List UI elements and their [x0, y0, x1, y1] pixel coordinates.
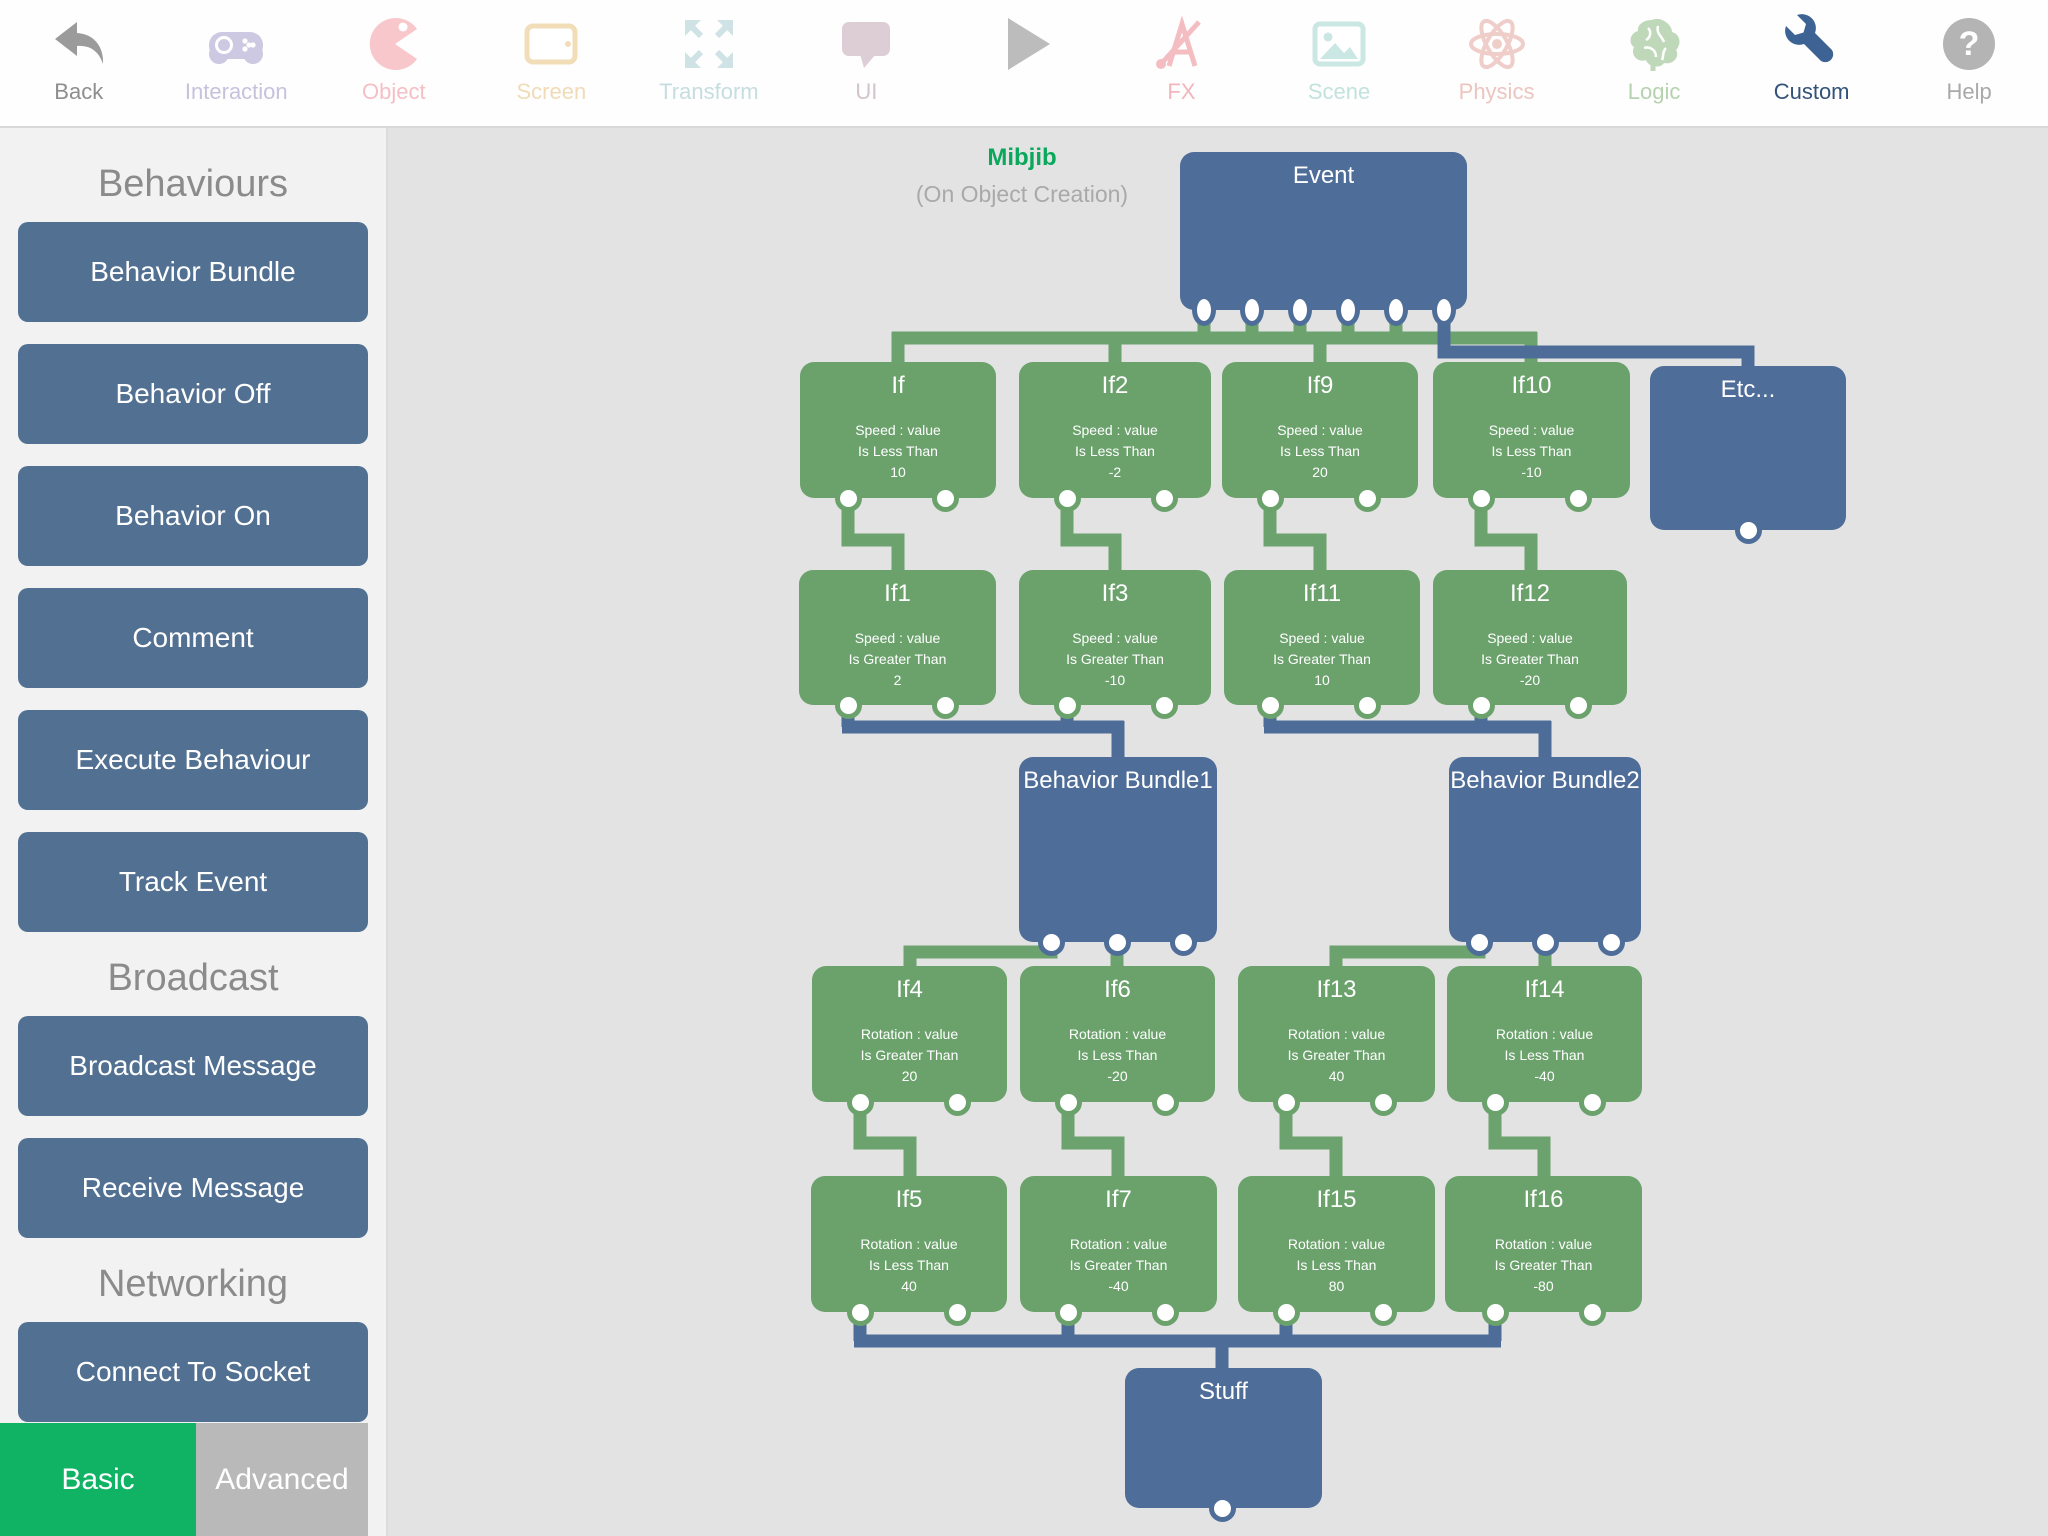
node-condition-text: Speed : valueIs Less Than20 — [1222, 420, 1418, 483]
toolbar-label-transform: Transform — [659, 80, 758, 104]
node-condition-text: Speed : valueIs Greater Than-10 — [1019, 628, 1211, 691]
output-port[interactable] — [1565, 692, 1592, 719]
node-if3[interactable]: If3Speed : valueIs Greater Than-10 — [1019, 570, 1211, 705]
toolbar-label-screen: Screen — [517, 80, 587, 104]
output-port[interactable] — [1054, 485, 1081, 512]
toolbar-item-custom[interactable]: Custom — [1733, 0, 1891, 126]
output-port[interactable] — [1192, 294, 1216, 326]
node-condition-text: Speed : valueIs Greater Than2 — [799, 628, 996, 691]
node-title: If11 — [1224, 580, 1420, 608]
node-if14[interactable]: If14Rotation : valueIs Less Than-40 — [1447, 966, 1642, 1102]
node-if12[interactable]: If12Speed : valueIs Greater Than-20 — [1433, 570, 1627, 705]
output-port[interactable] — [1565, 485, 1592, 512]
node-stuff[interactable]: Stuff — [1125, 1368, 1322, 1508]
output-port[interactable] — [1240, 294, 1264, 326]
back-icon — [47, 12, 111, 76]
tablet-icon — [519, 12, 583, 76]
sidebar-header-behaviours: Behaviours — [0, 162, 386, 206]
object-name: Mibjib — [892, 144, 1152, 172]
node-if6[interactable]: If6Rotation : valueIs Less Than-20 — [1020, 966, 1215, 1102]
node-condition-text: Rotation : valueIs Greater Than40 — [1238, 1024, 1435, 1087]
node-title: If4 — [812, 976, 1007, 1004]
node-title: If13 — [1238, 976, 1435, 1004]
node-title: If12 — [1433, 580, 1627, 608]
output-port[interactable] — [932, 485, 959, 512]
node-title: If5 — [811, 1186, 1007, 1214]
toolbar-item-back[interactable]: Back — [0, 0, 158, 126]
toolbar-item-scene[interactable]: Scene — [1260, 0, 1418, 126]
node-condition-text: Speed : valueIs Greater Than-20 — [1433, 628, 1627, 691]
sidebar-button-receive-message[interactable]: Receive Message — [18, 1138, 368, 1238]
node-behavior-bundle1[interactable]: Behavior Bundle1 — [1019, 757, 1217, 942]
node-event[interactable]: Event — [1180, 152, 1467, 310]
output-port[interactable] — [847, 1089, 874, 1116]
sidebar-button-comment[interactable]: Comment — [18, 588, 368, 688]
image-icon — [1307, 12, 1371, 76]
node-title: If16 — [1445, 1186, 1642, 1214]
output-port[interactable] — [1466, 929, 1493, 956]
node-title: If15 — [1238, 1186, 1435, 1214]
node-title: Behavior Bundle2 — [1449, 767, 1641, 795]
node-if5[interactable]: If5Rotation : valueIs Less Than40 — [811, 1176, 1007, 1312]
node-condition-text: Speed : valueIs Less Than-10 — [1433, 420, 1630, 483]
sidebar-header-networking: Networking — [0, 1262, 386, 1306]
object-annotation: Mibjib (On Object Creation) — [892, 144, 1152, 208]
toolbar-label-help: Help — [1947, 80, 1992, 104]
toolbar-item-help[interactable]: ?Help — [1890, 0, 2048, 126]
node-title: If — [800, 372, 996, 400]
node-if1[interactable]: If1Speed : valueIs Greater Than2 — [799, 570, 996, 705]
node-if16[interactable]: If16Rotation : valueIs Greater Than-80 — [1445, 1176, 1642, 1312]
node-condition-text: Rotation : valueIs Less Than-20 — [1020, 1024, 1215, 1087]
output-port[interactable] — [944, 1299, 971, 1326]
node-if[interactable]: IfSpeed : valueIs Less Than10 — [800, 362, 996, 498]
output-port[interactable] — [1273, 1299, 1300, 1326]
output-port[interactable] — [1152, 1089, 1179, 1116]
output-port[interactable] — [1354, 485, 1381, 512]
node-title: If6 — [1020, 976, 1215, 1004]
toolbar-label-scene: Scene — [1308, 80, 1370, 104]
output-port[interactable] — [1432, 294, 1456, 326]
brain-icon — [1622, 12, 1686, 76]
output-port[interactable] — [1054, 692, 1081, 719]
node-if13[interactable]: If13Rotation : valueIs Greater Than40 — [1238, 966, 1435, 1102]
output-port[interactable] — [1152, 1299, 1179, 1326]
output-port[interactable] — [1288, 294, 1312, 326]
node-etc[interactable]: Etc... — [1650, 366, 1846, 530]
output-port[interactable] — [1354, 692, 1381, 719]
graph-canvas[interactable] — [388, 128, 2048, 1536]
output-port[interactable] — [1336, 294, 1360, 326]
output-port[interactable] — [1384, 294, 1408, 326]
node-if9[interactable]: If9Speed : valueIs Less Than20 — [1222, 362, 1418, 498]
toolbar-label-ui: UI — [855, 80, 877, 104]
play-icon — [992, 12, 1056, 76]
output-port[interactable] — [1151, 485, 1178, 512]
question-icon: ? — [1937, 12, 2001, 76]
sidebar-button-connect-to-socket[interactable]: Connect To Socket — [18, 1322, 368, 1422]
output-port[interactable] — [1598, 929, 1625, 956]
wrench-icon — [1780, 12, 1844, 76]
atom-icon — [1465, 12, 1529, 76]
output-port[interactable] — [1170, 929, 1197, 956]
output-port[interactable] — [944, 1089, 971, 1116]
output-port[interactable] — [932, 692, 959, 719]
output-port[interactable] — [1209, 1495, 1236, 1522]
output-port[interactable] — [1273, 1089, 1300, 1116]
sidebar-button-track-event[interactable]: Track Event — [18, 832, 368, 932]
output-port[interactable] — [1579, 1299, 1606, 1326]
output-port[interactable] — [835, 485, 862, 512]
node-condition-text: Rotation : valueIs Less Than80 — [1238, 1234, 1435, 1297]
sidebar-header-broadcast: Broadcast — [0, 956, 386, 1000]
node-title: Etc... — [1650, 376, 1846, 404]
output-port[interactable] — [1735, 517, 1762, 544]
toolbar-label-fx: FX — [1167, 80, 1195, 104]
output-port[interactable] — [1055, 1299, 1082, 1326]
node-title: Event — [1180, 162, 1467, 190]
output-port[interactable] — [1055, 1089, 1082, 1116]
behavior-sidebar: BehavioursBehavior BundleBehavior OffBeh… — [0, 128, 388, 1536]
node-if4[interactable]: If4Rotation : valueIs Greater Than20 — [812, 966, 1007, 1102]
toolbar-item-physics[interactable]: Physics — [1418, 0, 1576, 126]
node-if2[interactable]: If2Speed : valueIs Less Than-2 — [1019, 362, 1211, 498]
output-port[interactable] — [1579, 1089, 1606, 1116]
node-title: Stuff — [1125, 1378, 1322, 1406]
node-title: If7 — [1020, 1186, 1217, 1214]
sidebar-button-behavior-off[interactable]: Behavior Off — [18, 344, 368, 444]
node-condition-text: Speed : valueIs Less Than10 — [800, 420, 996, 483]
node-condition-text: Rotation : valueIs Less Than40 — [811, 1234, 1007, 1297]
toolbar: BackInteractionObjectScreenTransformUIFX… — [0, 0, 2048, 128]
speech-bubble-icon — [834, 12, 898, 76]
expand-arrows-icon — [677, 12, 741, 76]
output-port[interactable] — [1532, 929, 1559, 956]
node-if15[interactable]: If15Rotation : valueIs Less Than80 — [1238, 1176, 1435, 1312]
gamepad-icon — [204, 12, 268, 76]
toolbar-item-interaction[interactable]: Interaction — [158, 0, 316, 126]
node-condition-text: Rotation : valueIs Less Than-40 — [1447, 1024, 1642, 1087]
toolbar-label-custom: Custom — [1774, 80, 1850, 104]
toolbar-label-object: Object — [362, 80, 426, 104]
node-title: If9 — [1222, 372, 1418, 400]
node-behavior-bundle2[interactable]: Behavior Bundle2 — [1449, 757, 1641, 942]
node-title: If2 — [1019, 372, 1211, 400]
node-title: If1 — [799, 580, 996, 608]
output-port[interactable] — [1482, 1089, 1509, 1116]
node-condition-text: Speed : valueIs Greater Than10 — [1224, 628, 1420, 691]
output-port[interactable] — [1038, 929, 1065, 956]
pacman-icon — [362, 12, 426, 76]
node-if11[interactable]: If11Speed : valueIs Greater Than10 — [1224, 570, 1420, 705]
toolbar-item-logic[interactable]: Logic — [1575, 0, 1733, 126]
node-condition-text: Rotation : valueIs Greater Than20 — [812, 1024, 1007, 1087]
node-title: Behavior Bundle1 — [1019, 767, 1217, 795]
output-port[interactable] — [847, 1299, 874, 1326]
toolbar-label-physics: Physics — [1459, 80, 1535, 104]
output-port[interactable] — [1151, 692, 1178, 719]
toolbar-item-play[interactable] — [945, 0, 1103, 126]
toolbar-item-fx[interactable]: FX — [1103, 0, 1261, 126]
output-port[interactable] — [1482, 1299, 1509, 1326]
toolbar-item-object[interactable]: Object — [315, 0, 473, 126]
sidebar-button-broadcast-message[interactable]: Broadcast Message — [18, 1016, 368, 1116]
event-trigger-label: (On Object Creation) — [892, 181, 1152, 208]
node-if7[interactable]: If7Rotation : valueIs Greater Than-40 — [1020, 1176, 1217, 1312]
node-title: If3 — [1019, 580, 1211, 608]
output-port[interactable] — [835, 692, 862, 719]
sidebar-button-behavior-bundle[interactable]: Behavior Bundle — [18, 222, 368, 322]
fx-ruler-icon — [1149, 12, 1213, 76]
tab-advanced[interactable]: Advanced — [196, 1423, 368, 1536]
sidebar-button-execute-behaviour[interactable]: Execute Behaviour — [18, 710, 368, 810]
output-port[interactable] — [1468, 692, 1495, 719]
toolbar-item-screen[interactable]: Screen — [473, 0, 631, 126]
node-title: If14 — [1447, 976, 1642, 1004]
tab-basic[interactable]: Basic — [0, 1423, 196, 1536]
sidebar-button-behavior-on[interactable]: Behavior On — [18, 466, 368, 566]
output-port[interactable] — [1257, 692, 1284, 719]
output-port[interactable] — [1370, 1089, 1397, 1116]
toolbar-item-ui[interactable]: UI — [788, 0, 946, 126]
app-window: BackInteractionObjectScreenTransformUIFX… — [0, 0, 2048, 1536]
svg-text:?: ? — [1959, 25, 1980, 63]
output-port[interactable] — [1257, 485, 1284, 512]
toolbar-item-transform[interactable]: Transform — [630, 0, 788, 126]
output-port[interactable] — [1370, 1299, 1397, 1326]
toolbar-label-back: Back — [54, 80, 103, 104]
output-port[interactable] — [1104, 929, 1131, 956]
toolbar-label-interaction: Interaction — [185, 80, 288, 104]
node-condition-text: Rotation : valueIs Greater Than-80 — [1445, 1234, 1642, 1297]
node-title: If10 — [1433, 372, 1630, 400]
node-if10[interactable]: If10Speed : valueIs Less Than-10 — [1433, 362, 1630, 498]
toolbar-label-logic: Logic — [1628, 80, 1681, 104]
output-port[interactable] — [1468, 485, 1495, 512]
node-condition-text: Speed : valueIs Less Than-2 — [1019, 420, 1211, 483]
node-condition-text: Rotation : valueIs Greater Than-40 — [1020, 1234, 1217, 1297]
